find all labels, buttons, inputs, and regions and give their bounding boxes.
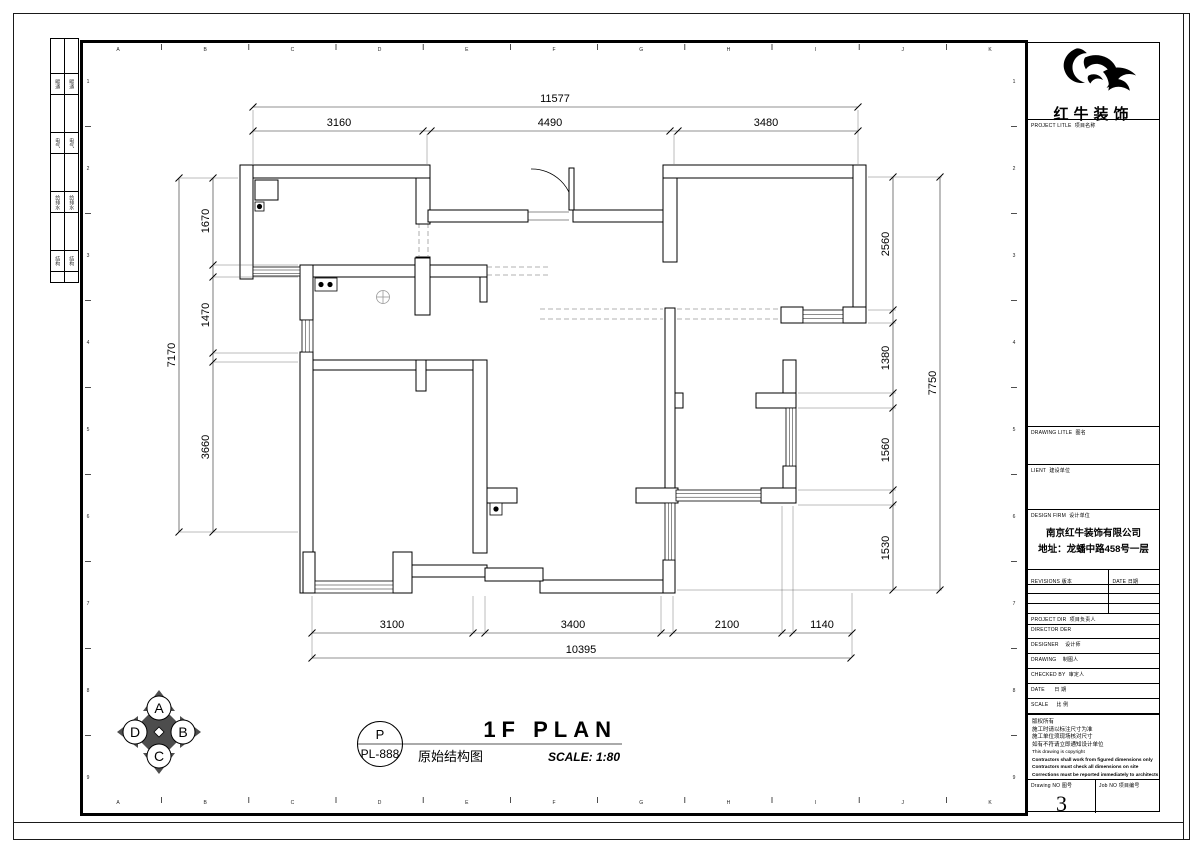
compass-letter: B <box>178 724 187 740</box>
dimension-label: 1530 <box>880 536 892 560</box>
grid-letter: E <box>465 47 469 53</box>
grid-number: 1 <box>87 79 90 85</box>
sign-strip-cell <box>51 95 65 132</box>
sign-strip-cell: 结构 <box>65 251 79 271</box>
plan-title: 1F PLAN <box>483 717 617 742</box>
sign-strip-cell: 结构 <box>51 251 65 271</box>
plan-subtitle-cn: 原始结构图 <box>418 749 483 764</box>
grid-letter: B <box>204 800 208 806</box>
grid-letter: I <box>815 47 816 53</box>
frame-grid-marks: AABBCCDDEEFFGGHHIIJJKK112233445566778899 <box>85 44 1017 806</box>
windows <box>253 267 843 593</box>
signature-strip: 暖通暖通电气电气给排水给排水结构结构 <box>50 38 79 283</box>
sign-strip-cell: 电气 <box>65 133 79 153</box>
grid-number: 2 <box>1013 166 1016 172</box>
designer-cell: DESIGNER 设计师 <box>1028 638 1159 653</box>
sign-strip-cell <box>65 272 79 282</box>
sign-strip-cell <box>65 213 79 250</box>
grid-letter: I <box>815 800 816 806</box>
grid-number: 6 <box>1013 514 1016 520</box>
grid-letter: B <box>204 47 208 53</box>
scale-cell: SCALE 比 例 <box>1028 698 1159 713</box>
sheet-margin-line-horizontal <box>13 822 1183 823</box>
grid-number: 5 <box>87 427 90 433</box>
door-leaf <box>569 168 574 210</box>
grid-letter: K <box>988 47 992 53</box>
drawing-number: 3 <box>1028 791 1095 817</box>
date-cell: DATE 日 期 <box>1028 683 1159 698</box>
dimension-label: 10395 <box>566 644 597 656</box>
checked-by-cell: CHECKED BY 审定人 <box>1028 668 1159 683</box>
drawing-by-cell: DRAWING 制图人 <box>1028 653 1159 668</box>
dimension-label: 1380 <box>880 346 892 370</box>
grid-number: 3 <box>87 253 90 259</box>
ceiling-light-symbol <box>377 291 390 304</box>
notes-cell: 版权所有 施工时请以标注尺寸为准 施工单位须现场核对尺寸 如有不符请立即通知设计… <box>1028 713 1159 779</box>
grid-number: 2 <box>87 166 90 172</box>
grid-number: 7 <box>1013 601 1016 607</box>
dimension-label: 3660 <box>200 435 212 459</box>
grid-letter: H <box>727 47 731 53</box>
sign-strip-cell: 暖通 <box>51 74 65 94</box>
dimension-label: 3400 <box>561 619 585 631</box>
compass-letter: A <box>154 700 164 716</box>
opening-dashed-lines <box>323 223 780 364</box>
sign-strip-row <box>51 39 78 74</box>
director-cell: DIRECTOR DER <box>1028 624 1159 638</box>
grid-number: 1 <box>1013 79 1016 85</box>
dimension-label: 2100 <box>715 619 739 631</box>
sign-strip-row <box>51 95 78 133</box>
north-compass: A B C D <box>117 690 201 774</box>
dimension-label: 1140 <box>810 619 834 631</box>
grid-letter: A <box>116 800 120 806</box>
compass-letter: C <box>154 748 164 764</box>
revisions-header: REVISIONS 版本 DATE 日期 <box>1028 569 1159 584</box>
grid-letter: D <box>378 47 382 53</box>
plan-symbols <box>255 202 502 515</box>
sign-strip-cell: 电气 <box>51 133 65 153</box>
grid-letter: C <box>291 800 295 806</box>
grid-letter: J <box>902 47 905 53</box>
sign-strip-cell <box>65 95 79 132</box>
grid-letter: F <box>552 800 555 806</box>
grid-number: 4 <box>1013 340 1016 346</box>
logo-cell: 红牛装饰 <box>1028 43 1159 119</box>
dimension-label: 7170 <box>166 343 178 367</box>
drawing-no-cell: Drawing NO 图号 3 Job NO 项目编号 <box>1028 779 1159 813</box>
compass-letter: D <box>130 724 140 740</box>
grid-letter: H <box>727 800 731 806</box>
grid-letter: F <box>552 47 555 53</box>
grid-number: 5 <box>1013 427 1016 433</box>
dimension-label: 1560 <box>880 438 892 462</box>
dimension-label: 11577 <box>540 93 570 105</box>
cad-floorplan-sheet: { "plan": { "title": {"main": "1F PLAN",… <box>0 0 1200 852</box>
grid-letter: K <box>988 800 992 806</box>
sign-strip-cell <box>51 154 65 191</box>
drawing-ref-code: PL-888 <box>361 747 400 761</box>
sign-strip-row <box>51 213 78 251</box>
project-title-cell: PROJECT LITLE 项目名称 <box>1028 119 1159 426</box>
project-dir-cell: PROJECT DIR 项目负责人 <box>1028 613 1159 624</box>
sign-strip-row: 结构结构 <box>51 251 78 272</box>
grid-number: 9 <box>1013 775 1016 781</box>
dimension-label: 4490 <box>538 117 562 129</box>
grid-number: 6 <box>87 514 90 520</box>
entry-door <box>528 168 574 220</box>
grid-letter: D <box>378 800 382 806</box>
revision-row <box>1028 603 1159 613</box>
sign-strip-cell <box>65 154 79 191</box>
dimension-label: 2560 <box>880 232 892 256</box>
drawing-title-cell: DRAWING LITLE 图名 <box>1028 426 1159 464</box>
grid-number: 8 <box>87 688 90 694</box>
dimension-label: 3100 <box>380 619 404 631</box>
sign-strip-row: 暖通暖通 <box>51 74 78 95</box>
revision-row <box>1028 584 1159 593</box>
grid-number: 8 <box>1013 688 1016 694</box>
design-firm-address: 地址：龙蟠中路458号一层 <box>1028 541 1159 555</box>
client-cell: LIENT 建设单位 <box>1028 464 1159 509</box>
sheet-margin-line-vertical <box>1183 13 1184 839</box>
grid-letter: G <box>639 800 643 806</box>
sign-strip-row <box>51 272 78 282</box>
door-arc <box>531 169 573 210</box>
design-firm-company: 南京红牛装饰有限公司 <box>1028 525 1159 539</box>
revision-row <box>1028 593 1159 603</box>
dimension-label: 1470 <box>200 303 212 327</box>
sign-strip-row: 电气电气 <box>51 133 78 154</box>
grid-number: 7 <box>87 601 90 607</box>
outlet-symbol <box>257 204 262 209</box>
sign-strip-row <box>51 154 78 192</box>
walls <box>240 165 866 593</box>
grid-number: 3 <box>1013 253 1016 259</box>
sign-strip-cell <box>65 39 79 73</box>
plan-scale: SCALE: 1:80 <box>548 750 620 764</box>
floor-plan-svg: AABBCCDDEEFFGGHHIIJJKK112233445566778899 <box>80 40 1022 810</box>
sign-strip-cell: 给排水 <box>51 192 65 212</box>
dimension-label: 1670 <box>200 209 212 233</box>
sign-strip-row: 给排水给排水 <box>51 192 78 213</box>
grid-number: 4 <box>87 340 90 346</box>
sign-strip-cell: 暖通 <box>65 74 79 94</box>
title-block: 红牛装饰 PROJECT LITLE 项目名称 DRAWING LITLE 图名… <box>1027 42 1160 812</box>
redniu-bull-logo <box>1049 45 1139 97</box>
grid-letter: C <box>291 47 295 53</box>
sign-strip-cell <box>51 272 65 282</box>
drawing-ref-letter: P <box>376 727 385 742</box>
grid-letter: G <box>639 47 643 53</box>
dimension-label: 7750 <box>927 371 939 395</box>
grid-letter: J <box>902 800 905 806</box>
grid-letter: E <box>465 800 469 806</box>
plan-title-group: P PL-888 1F PLAN 原始结构图 SCALE: 1:80 <box>357 717 622 767</box>
sign-strip-cell: 给排水 <box>65 192 79 212</box>
design-firm-cell: DESIGN FIRM 设计单位 南京红牛装饰有限公司 地址：龙蟠中路458号一… <box>1028 509 1159 569</box>
dimension-label: 3480 <box>754 117 778 129</box>
sign-strip-cell <box>51 213 65 250</box>
sign-strip-cell <box>51 39 65 73</box>
dimension-label: 3160 <box>327 117 351 129</box>
grid-number: 9 <box>87 775 90 781</box>
grid-letter: A <box>116 47 120 53</box>
